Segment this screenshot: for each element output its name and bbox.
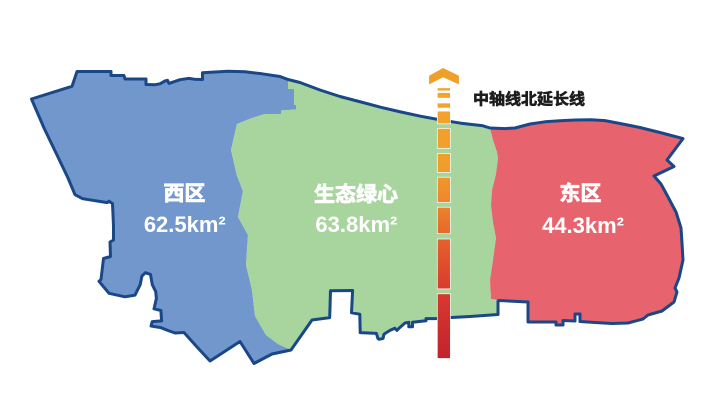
- svg-text:62.5km²: 62.5km²: [144, 212, 226, 237]
- svg-text:44.3km²: 44.3km²: [542, 213, 624, 238]
- svg-text:63.8km²: 63.8km²: [315, 212, 397, 237]
